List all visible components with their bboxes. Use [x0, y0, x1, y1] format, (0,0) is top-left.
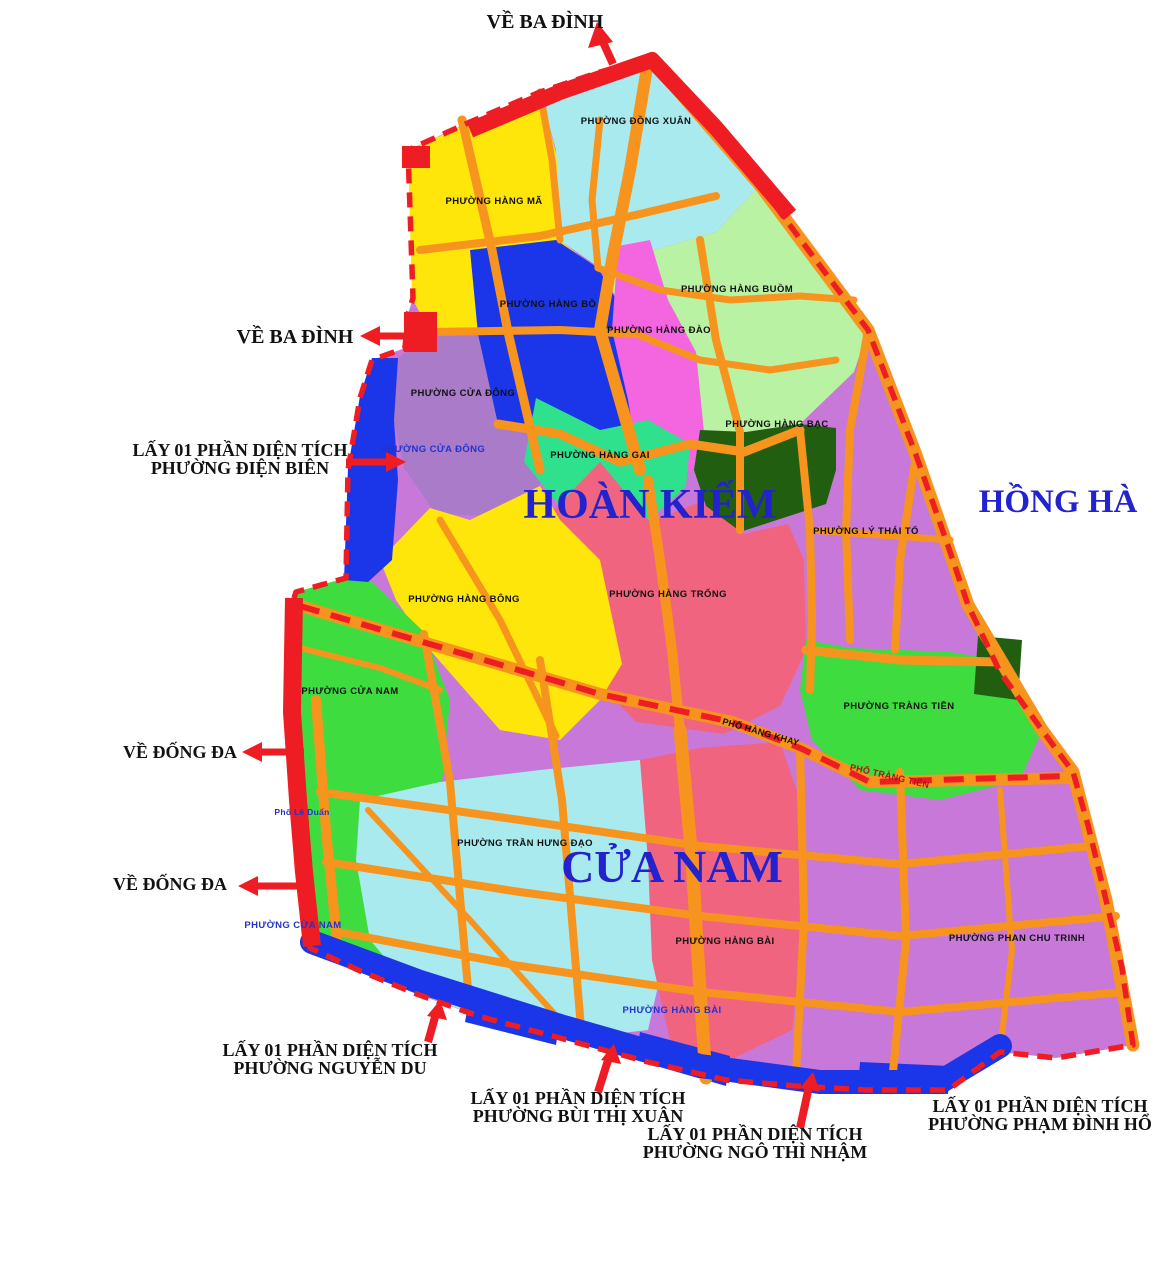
label-hang-ma: PHƯỜNG HÀNG MÃ	[445, 195, 542, 207]
callout-nguyen-du-line1: LẤY 01 PHẦN DIỆN TÍCH	[222, 1039, 437, 1060]
label-hang-gai: PHƯỜNG HÀNG GAI	[550, 449, 650, 461]
label-hang-bong: PHƯỜNG HÀNG BÔNG	[408, 593, 520, 605]
label-phan-chu-trinh: PHƯỜNG PHAN CHU TRINH	[949, 932, 1085, 944]
arrowhead-dong-da-1	[242, 742, 262, 762]
callout-nguyen-du-line2: PHƯỜNG NGUYỄN DU	[233, 1057, 426, 1078]
callout-bui-thi-xuan-line2: PHƯỜNG BÙI THỊ XUÂN	[473, 1105, 684, 1126]
map-page: PHƯỜNG ĐỒNG XUÂN PHƯỜNG HÀNG MÃ PHƯỜNG H…	[0, 0, 1170, 1274]
label-hang-bai: PHƯỜNG HÀNG BÀI	[675, 935, 774, 947]
callout-pham-dinh-ho-line2: PHƯỜNG PHẠM ĐÌNH HỔ	[928, 1113, 1152, 1134]
callout-bui-thi-xuan-line1: LẤY 01 PHẦN DIỆN TÍCH	[470, 1087, 685, 1108]
label-trang-tien: PHƯỜNG TRÀNG TIỀN	[844, 700, 955, 712]
label-cua-dong-blue: PHƯỜNG CỬA ĐÔNG	[381, 443, 485, 455]
arrowhead-dong-da-2	[238, 876, 258, 896]
road-segment	[432, 330, 636, 334]
label-hang-bai-blue: PHƯỜNG HÀNG BÀI	[622, 1004, 721, 1016]
callout-dien-bien-line2: PHƯỜNG ĐIỆN BIÊN	[151, 457, 329, 478]
label-hang-trong: PHƯỜNG HÀNG TRỐNG	[609, 588, 727, 600]
callout-ve-ba-dinh-left: VỀ BA ĐÌNH	[237, 324, 354, 348]
label-hang-bac: PHƯỜNG HÀNG BẠC	[725, 418, 828, 430]
callout-ngo-thi-nham-line1: LẤY 01 PHẦN DIỆN TÍCH	[647, 1123, 862, 1144]
callout-dien-bien-line1: LẤY 01 PHẦN DIỆN TÍCH	[132, 439, 347, 460]
label-hang-dao: PHƯỜNG HÀNG ĐÀO	[607, 324, 711, 336]
label-hang-buom: PHƯỜNG HÀNG BUỒM	[681, 283, 793, 295]
callout-ve-dong-da-1: VỀ ĐỐNG ĐA	[123, 741, 237, 762]
label-hang-bo: PHƯỜNG HÀNG BỒ	[500, 298, 597, 310]
callout-ngo-thi-nham-line2: PHƯỜNG NGÔ THÌ NHẬM	[643, 1141, 868, 1162]
map-canvas: PHƯỜNG ĐỒNG XUÂN PHƯỜNG HÀNG MÃ PHƯỜNG H…	[0, 0, 1170, 1274]
callout-ve-dong-da-2: VỀ ĐỐNG ĐA	[113, 873, 227, 894]
label-cua-nam: PHƯỜNG CỬA NAM	[301, 685, 398, 697]
label-pho-le-duan: Phố Lê Duẩn	[274, 807, 329, 817]
callout-ve-ba-dinh-top: VỀ BA ĐÌNH	[487, 9, 604, 33]
label-ly-thai-to: PHƯỜNG LÝ THÁI TỔ	[813, 525, 919, 537]
label-dong-xuan: PHƯỜNG ĐỒNG XUÂN	[581, 115, 692, 127]
label-cua-nam-blue: PHƯỜNG CỬA NAM	[244, 919, 341, 931]
title-cua-nam: CỬA NAM	[561, 841, 783, 892]
title-hong-ha: HỒNG HÀ	[979, 481, 1138, 520]
callout-pham-dinh-ho-line1: LẤY 01 PHẦN DIỆN TÍCH	[932, 1095, 1147, 1116]
label-cua-dong: PHƯỜNG CỬA ĐÔNG	[411, 387, 515, 399]
title-hoan-kiem: HOÀN KIẾM	[523, 480, 776, 528]
arrowhead-ve-ba-dinh-left	[360, 326, 380, 346]
